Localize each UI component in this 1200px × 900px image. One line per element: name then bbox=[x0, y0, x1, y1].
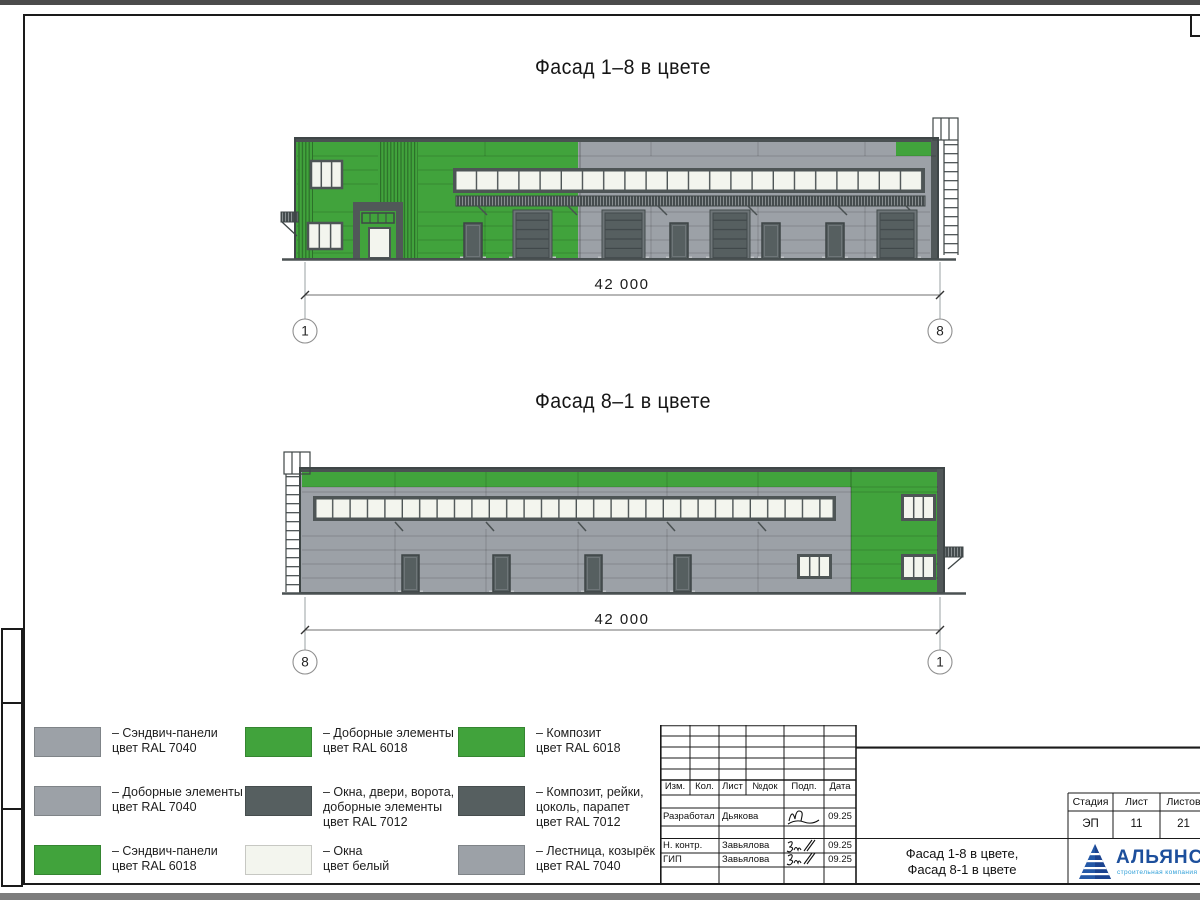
legend-label: – Доборные элементы цвет RAL 6018 bbox=[323, 726, 454, 756]
legend-item: – Доборные элементы цвет RAL 6018 bbox=[245, 727, 454, 757]
axis-label: 1 bbox=[936, 655, 944, 670]
side-stamp-box bbox=[1, 628, 23, 704]
sheet-number: 11 bbox=[1113, 811, 1160, 838]
window bbox=[311, 161, 342, 188]
legend-item: – Сэндвич-панели цвет RAL 6018 bbox=[34, 845, 218, 875]
clerestory-window-band bbox=[453, 168, 925, 193]
legend-swatch bbox=[34, 786, 101, 816]
signature-icon bbox=[786, 852, 822, 866]
name-cell: Завьялова bbox=[722, 839, 782, 853]
rev-header: Подп. bbox=[784, 779, 824, 795]
legend-label: – Сэндвич-панели цвет RAL 6018 bbox=[112, 844, 218, 874]
logo-pyramid-icon bbox=[1078, 843, 1112, 881]
legend-label: – Лестница, козырёк цвет RAL 7040 bbox=[536, 844, 655, 874]
sheet-count: 21 bbox=[1160, 811, 1200, 838]
facade-1-building bbox=[281, 118, 958, 260]
legend-swatch bbox=[245, 786, 312, 816]
facade-2-title: Фасад 8–1 в цвете bbox=[302, 390, 944, 414]
axis-label: 1 bbox=[301, 324, 309, 339]
signature-icon bbox=[786, 805, 822, 827]
rev-header: №док bbox=[746, 779, 784, 795]
name-cell: Дьякова bbox=[722, 808, 782, 826]
legend-label: – Сэндвич-панели цвет RAL 7040 bbox=[112, 726, 218, 756]
axis-label: 8 bbox=[936, 324, 944, 339]
clerestory-window-band bbox=[313, 496, 836, 521]
window bbox=[901, 554, 936, 580]
role-cell: Н. контр. bbox=[663, 839, 718, 853]
rev-header: Кол. bbox=[690, 779, 719, 795]
role-cell: Разработал bbox=[663, 808, 718, 826]
corner-stamp-box bbox=[1190, 14, 1200, 37]
stage-header: Стадия bbox=[1068, 793, 1113, 811]
louver-strip bbox=[456, 196, 925, 206]
dimension-text: 42 000 bbox=[595, 611, 650, 628]
rev-header: Лист bbox=[719, 779, 746, 795]
legend-label: – Доборные элементы цвет RAL 7040 bbox=[112, 785, 243, 815]
axis-label: 8 bbox=[301, 655, 309, 670]
legend-swatch bbox=[34, 727, 101, 757]
canopy-icon bbox=[945, 547, 963, 569]
legend-label: – Окна цвет белый bbox=[323, 844, 389, 874]
legend-swatch bbox=[245, 727, 312, 757]
logo-text: АЛЬЯНС bbox=[1116, 847, 1200, 869]
legend-label: – Окна, двери, ворота, доборные элементы… bbox=[323, 785, 454, 830]
legend-item: – Окна цвет белый bbox=[245, 845, 389, 875]
entrance-portal bbox=[353, 202, 403, 259]
window bbox=[797, 554, 832, 579]
legend-swatch bbox=[245, 845, 312, 875]
document-title: Фасад 1-8 в цвете, Фасад 8-1 в цвете bbox=[858, 840, 1066, 884]
facade-2-drawing: 42 000 8 1 bbox=[278, 440, 968, 680]
logo-subtitle: строительная компания bbox=[1117, 869, 1200, 876]
legend-swatch bbox=[458, 845, 525, 875]
legend-item: – Сэндвич-панели цвет RAL 7040 bbox=[34, 727, 218, 757]
entrance-door bbox=[369, 228, 390, 258]
stage-header: Листов bbox=[1160, 793, 1200, 811]
legend-label: – Композит цвет RAL 6018 bbox=[536, 726, 621, 756]
date-cell: 09.25 bbox=[824, 808, 856, 826]
window bbox=[308, 223, 342, 249]
facade-1-drawing: 42 000 1 8 bbox=[278, 108, 968, 353]
legend-item: – Лестница, козырёк цвет RAL 7040 bbox=[458, 845, 655, 875]
window bbox=[901, 494, 936, 521]
viewer-top-bar bbox=[0, 0, 1200, 5]
legend-swatch bbox=[458, 727, 525, 757]
name-cell: Завьялова bbox=[722, 853, 782, 867]
legend-swatch bbox=[34, 845, 101, 875]
role-cell: ГИП bbox=[663, 853, 718, 867]
rev-header: Изм. bbox=[660, 779, 690, 795]
facade-1-title: Фасад 1–8 в цвете bbox=[302, 56, 944, 80]
drawing-sheet: Фасад 1–8 в цвете bbox=[0, 0, 1200, 900]
legend-label: – Композит, рейки, цоколь, парапет цвет … bbox=[536, 785, 644, 830]
legend-item: – Композит цвет RAL 6018 bbox=[458, 727, 621, 757]
rev-header: Дата bbox=[824, 779, 856, 795]
date-cell: 09.25 bbox=[824, 839, 856, 853]
legend-item: – Окна, двери, ворота, доборные элементы… bbox=[245, 786, 454, 830]
side-stamp-box bbox=[1, 702, 23, 810]
viewer-bottom-bar bbox=[0, 893, 1200, 900]
facade-2-building bbox=[282, 452, 966, 594]
facade-2-dimension: 42 000 8 1 bbox=[293, 597, 952, 674]
legend-swatch bbox=[458, 786, 525, 816]
stage-value: ЭП bbox=[1068, 811, 1113, 838]
legend-item: – Доборные элементы цвет RAL 7040 bbox=[34, 786, 243, 816]
legend-item: – Композит, рейки, цоколь, парапет цвет … bbox=[458, 786, 644, 830]
facade-1-dimension: 42 000 1 8 bbox=[293, 262, 952, 343]
dimension-text: 42 000 bbox=[595, 276, 650, 293]
date-cell: 09.25 bbox=[824, 853, 856, 867]
stage-header: Лист bbox=[1113, 793, 1160, 811]
side-stamp-box bbox=[1, 808, 23, 887]
signature-icon bbox=[786, 839, 822, 853]
